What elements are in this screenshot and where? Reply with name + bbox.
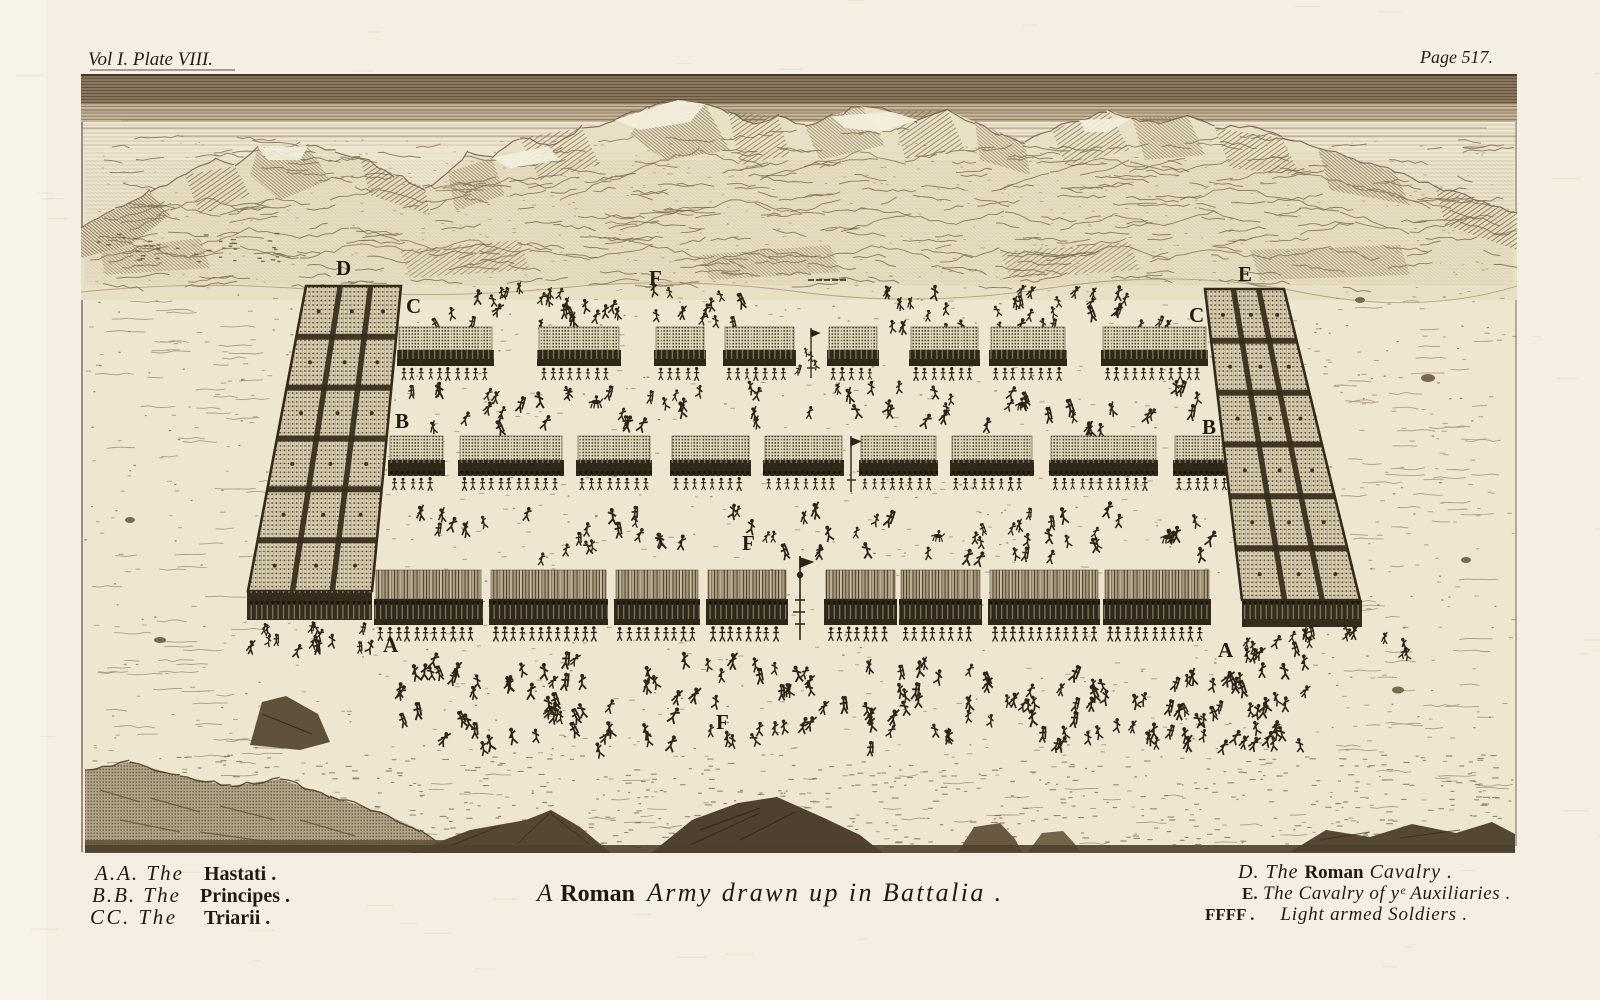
svg-text:E: E — [1238, 262, 1252, 286]
svg-text:A: A — [383, 633, 399, 657]
svg-text:F: F — [742, 531, 755, 555]
svg-text:Vol I. Plate VIII.: Vol I. Plate VIII. — [88, 49, 213, 70]
svg-text:D: D — [336, 256, 351, 280]
svg-text:C: C — [1189, 303, 1204, 327]
svg-text:F: F — [716, 710, 729, 734]
svg-text:C: C — [406, 294, 421, 318]
svg-text:A: A — [1218, 638, 1234, 662]
svg-text:B: B — [395, 409, 409, 433]
svg-text:Page 517.: Page 517. — [1419, 47, 1493, 67]
svg-text:B: B — [1202, 415, 1216, 439]
svg-text:D. The Roman Cavalry .: D. The Roman Cavalry . — [1237, 861, 1453, 883]
svg-text:F: F — [649, 266, 662, 290]
svg-text:E. The Cavalry of yᵉ Auxiliari: E. The Cavalry of yᵉ Auxiliaries . — [1242, 883, 1511, 904]
svg-text:ARomanArmy drawn up in Battali: ARomanArmy drawn up in Battalia . — [535, 878, 1004, 907]
svg-text:FFFF .Light armed Soldiers .: FFFF .Light armed Soldiers . — [1205, 904, 1468, 925]
